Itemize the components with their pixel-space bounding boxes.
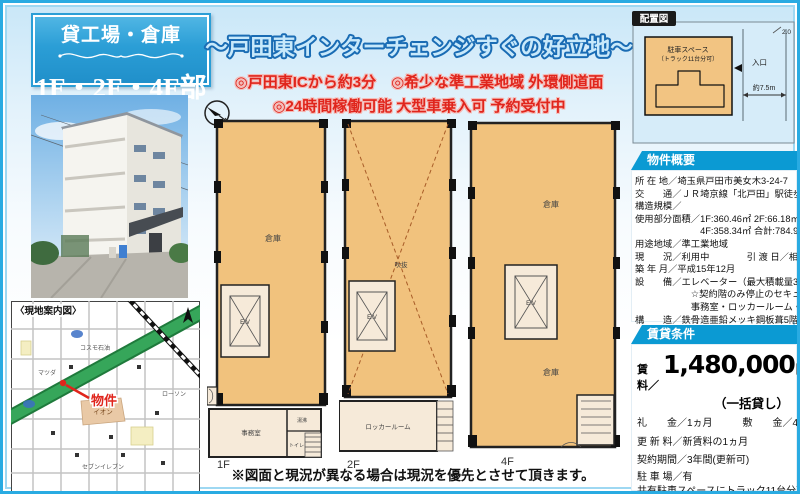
f2-locker-label: ロッカールーム: [365, 423, 411, 431]
overview-panel: 所 在 地／埼玉県戸田市美女木3-24-7 交 通／ＪＲ埼京線「北戸田」駅徒歩1…: [631, 170, 797, 322]
f1-office-area: [209, 409, 321, 457]
layout-diagram: 配置図 駐車スペース （トラック11台分可） 約7.5m 入口 2.0: [630, 9, 797, 147]
property-type-badge: 貸工場・倉庫 1F・2F・4F部分: [31, 13, 211, 87]
terms-banner: 賃貸条件: [631, 325, 797, 344]
headline: 〜戸田東インターチェンジすぐの好立地〜 ◎戸田東ICから約3分 ◎希少な準工業地…: [203, 27, 635, 116]
f1-warehouse-area: [217, 121, 325, 405]
f1-elevator-label: E.V: [240, 320, 250, 326]
map-label-cosmo: コスモ石油: [80, 344, 110, 352]
layout-diagram-title: 配置図: [640, 13, 669, 25]
f2-stairs: [437, 401, 453, 451]
rent-label: 賃 料／: [637, 361, 659, 393]
site-map: イオン コスモ石油 マツダ ローソン セブンイレブン 物件 〈現地案内図〉: [11, 301, 200, 493]
f2-void-label: 吹抜: [395, 260, 409, 269]
headline-title-art: 〜戸田東インターチェンジすぐの好立地〜: [203, 27, 635, 65]
map-label-lawson: ローソン: [162, 392, 186, 398]
entrance-label: 入口: [752, 58, 767, 67]
f2-elevator-label: E.V: [367, 315, 377, 321]
overview-banner: 物件概要: [631, 151, 797, 170]
floor-plan-2f: 吹抜 E.V ロッカールーム 2F: [339, 117, 459, 469]
parking-label: 駐車スペース: [667, 45, 708, 54]
terms-title: 賃貸条件: [647, 327, 695, 341]
terms-line: 礼 金／1ヵ月 敷 金／4ヵ月: [637, 415, 791, 434]
overview-line: 使用部分面積／1F:360.46㎡ 2F:66.18㎡: [635, 213, 793, 226]
rent-unit: 円: [796, 360, 800, 377]
disclaimer-text: ※図面と現況が異なる場合は現況を優先とさせて頂きます。: [201, 464, 625, 484]
terms-line: 更 新 料／新賃料の1ヵ月: [637, 434, 791, 453]
overview-line: 設 備／エレベーター（最大積載量3ｔ）: [635, 276, 793, 289]
f1-warehouse-label: 倉庫: [265, 233, 281, 243]
terms-line: 契約期間／3年間(更新可): [637, 452, 791, 471]
offset-dimension: 2.0: [782, 29, 791, 36]
map-label-seven: セブンイレブン: [82, 463, 124, 471]
overview-line: 交 通／ＪＲ埼京線「北戸田」駅徒歩18分: [635, 188, 793, 201]
overview-line: ☆契約階のみ停止のセキュリティカード付: [635, 288, 793, 301]
rent-note: （一括貸し）: [637, 393, 789, 412]
building-photo: [31, 95, 188, 298]
floor-plan-4f: 倉庫 倉庫 E.V 4F: [463, 117, 623, 469]
badge-line1: 貸工場・倉庫: [31, 20, 211, 47]
terms-panel: 賃 料／ 1,480,000 円 （一括貸し） 礼 金／1ヵ月 敷 金／4ヵ月 …: [631, 344, 797, 491]
overview-line: 構 造／鉄骨造亜鉛メッキ鋼板葺5階建: [635, 314, 793, 327]
overview-line: 4F:358.34㎡ 合計:784.98㎡: [635, 225, 793, 238]
property-location-dot: [60, 380, 66, 386]
f1-office-label: 事務室: [241, 428, 261, 437]
site-map-title: 〈現地案内図〉: [15, 305, 82, 317]
f4-elevator-label: E.V: [526, 301, 536, 307]
f4-warehouse-upper-label: 倉庫: [543, 199, 559, 209]
overview-line: 構造規模／: [635, 200, 793, 213]
overview-title: 物件概要: [647, 153, 695, 167]
parking-note: （トラック11台分可）: [658, 55, 718, 63]
flourish-divider: [56, 51, 186, 60]
building-photo-art: [31, 95, 188, 298]
overview-line: 築 年 月／平成15年12月: [635, 263, 793, 276]
headline-title: 〜戸田東インターチェンジすぐの好立地〜: [205, 34, 633, 60]
map-label-aeon: イオン: [93, 408, 113, 416]
headline-point-2: ◎24時間稼働可能 大型車乗入可 予約受付中: [203, 95, 635, 116]
f4-stairs: [577, 395, 614, 445]
overview-line: 所 在 地／埼玉県戸田市美女木3-24-7: [635, 175, 793, 188]
flyer-page: 貸工場・倉庫 1F・2F・4F部分 〜戸田東インターチェンジすぐの好立地〜 ◎戸…: [0, 0, 800, 494]
overview-line: 現 況／利用中 引 渡 日／相談: [635, 251, 793, 264]
overview-line: 事務室・ロッカールーム・トイレ・電気・水道: [635, 301, 793, 314]
map-property-label: 物件: [91, 393, 117, 408]
rent-row: 賃 料／ 1,480,000 円: [637, 350, 791, 393]
floor-plan-1f: 倉庫 E.V 事務室 湯沸 トイレ 1F: [207, 117, 333, 469]
f1-toilet-label: トイレ: [289, 443, 304, 449]
f1-stairs: [305, 433, 321, 457]
map-label-mazda: マツダ: [38, 369, 56, 377]
terms-line: 共有駐車スペースにトラック11台分可: [637, 485, 791, 494]
f4-warehouse-lower-label: 倉庫: [543, 367, 559, 377]
width-dimension: 約7.5m: [753, 83, 776, 92]
terms-line: 駐 車 場／有: [637, 471, 791, 485]
f1-kitchen-label: 湯沸: [297, 417, 307, 424]
headline-point-1: ◎戸田東ICから約3分 ◎希少な準工業地域 外環側道面: [203, 71, 635, 92]
overview-line: 用途地域／準工業地域: [635, 238, 793, 251]
rent-value: 1,480,000: [663, 350, 795, 379]
